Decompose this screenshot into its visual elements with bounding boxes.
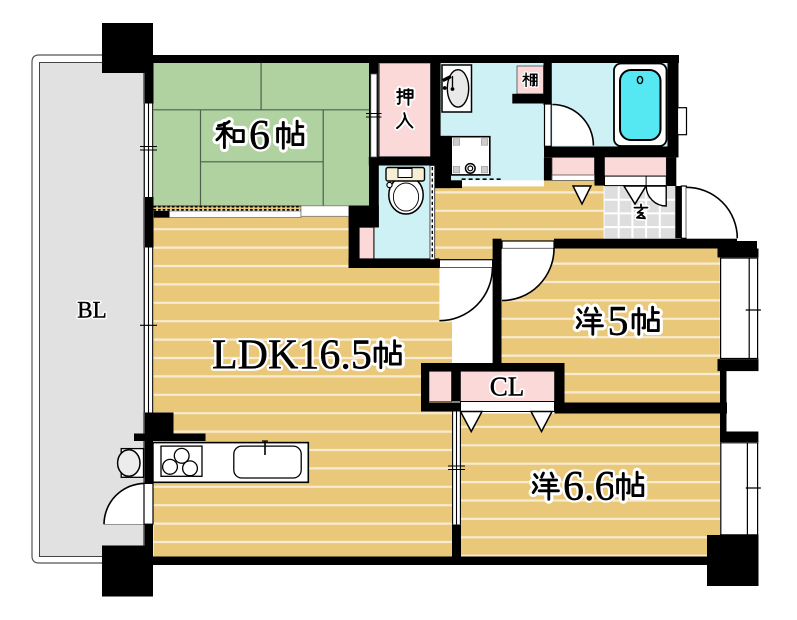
svg-text:CL: CL [490,372,525,402]
svg-text:6: 6 [249,113,270,159]
svg-text:LDK16.5: LDK16.5 [212,333,372,379]
svg-text:6.6: 6.6 [563,464,616,510]
svg-text:BL: BL [77,298,106,323]
svg-text:5: 5 [608,299,629,345]
